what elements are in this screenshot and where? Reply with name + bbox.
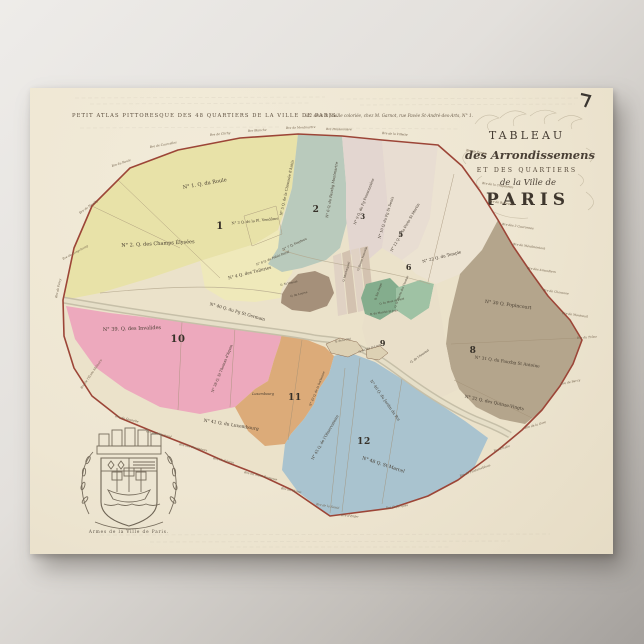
title-line1: TABLEAU xyxy=(489,129,565,142)
arrondissement-number: 8 xyxy=(470,346,477,356)
quartier-label: Luxembourg xyxy=(251,392,275,396)
arrondissement-number: 5 xyxy=(398,230,403,239)
barrier-label: Bre de Passy xyxy=(54,278,62,299)
arrondissement-number: 9 xyxy=(380,338,386,348)
ink-mark xyxy=(581,94,590,107)
arrondissement-number: 2 xyxy=(313,205,320,215)
arrondissement-number: 6 xyxy=(406,262,412,272)
barrier-label: Bre des 3 Couronnes xyxy=(501,222,535,231)
arrondissement-number: 12 xyxy=(357,437,371,447)
arrondissement-number: 10 xyxy=(170,334,185,345)
barrier-label: Bre de la Villette xyxy=(381,131,408,137)
paris-map: PETIT ATLAS PITTORESQUE DES 48 QUARTIERS… xyxy=(30,88,613,554)
title-line3: ET DES QUARTIERS xyxy=(477,167,578,174)
arrondissement-number: 11 xyxy=(288,393,302,403)
arrondissement-number: 3 xyxy=(360,212,365,221)
barrier-label: Bre Poissonnière xyxy=(325,127,352,131)
map-poster: PETIT ATLAS PITTORESQUE DES 48 QUARTIERS… xyxy=(30,88,613,554)
arms-caption: Armes de la Ville de Paris. xyxy=(88,529,169,534)
product-backdrop: PETIT ATLAS PITTORESQUE DES 48 QUARTIERS… xyxy=(0,0,644,644)
barrier-label: Bre de Ménilmontant xyxy=(512,242,546,251)
arrondissement-number: 1 xyxy=(216,221,224,232)
barrier-label: Bre de Courcelles xyxy=(148,140,177,149)
barrier-label: Bre d'Enfer xyxy=(340,513,359,519)
barrier-label: Bre Blanche xyxy=(247,128,267,133)
imprint-line: à 2 sous la feuille coloriée, chez M. Ga… xyxy=(306,113,473,118)
barrier-label: Bre de Clichy xyxy=(209,131,231,137)
barrier-label: Bre de Montmartre xyxy=(285,125,316,130)
coat-of-arms: Armes de la Ville de Paris. xyxy=(80,428,178,534)
series-caption: PETIT ATLAS PITTORESQUE DES 48 QUARTIERS… xyxy=(72,113,339,119)
barrier-label: Bre du Roule xyxy=(110,158,131,168)
